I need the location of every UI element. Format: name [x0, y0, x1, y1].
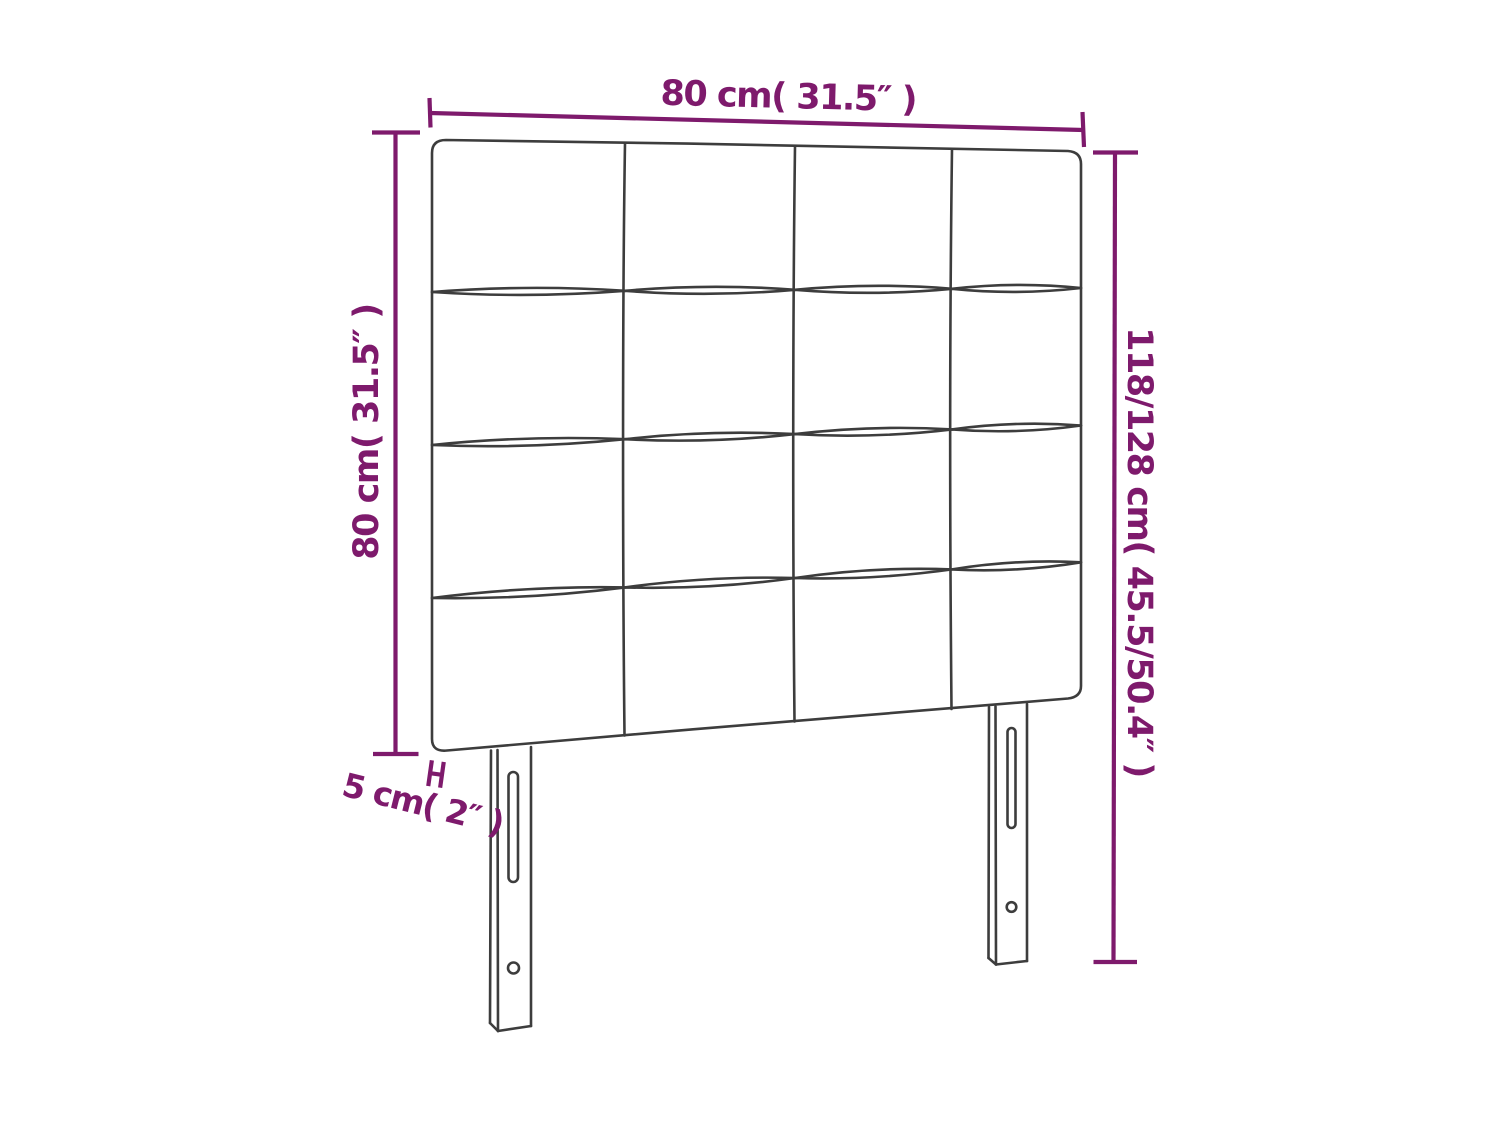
right-leg-bolt-hole	[1007, 902, 1017, 912]
left-leg-bolt-hole	[508, 963, 519, 974]
left-leg-slot	[509, 772, 519, 882]
right-leg-front-left-edge	[996, 707, 997, 965]
dimension-labels: 80 cm( 31.5″ ) 80 cm( 31.5″ ) 118/128 cm…	[338, 74, 1159, 843]
left-leg-bottom-edge	[498, 1026, 531, 1031]
width-dimension-right-tick	[1083, 112, 1085, 147]
left-leg	[490, 747, 531, 1031]
width-dimension-label: 80 cm( 31.5″ )	[660, 74, 916, 121]
right-leg-bottom-edge	[996, 961, 1027, 965]
total-height-dimension-label: 118/128 cm( 45.5/50.4″ )	[1119, 327, 1159, 777]
horizontal-seam-3-upper	[432, 561, 1081, 598]
headboard-drawing	[432, 140, 1081, 1031]
height-dimension-label: 80 cm( 31.5″ )	[347, 304, 387, 559]
right-leg-side-edge	[989, 707, 990, 958]
horizontal-seam-3-lower	[432, 562, 1081, 598]
left-leg-side-edge	[490, 751, 491, 1024]
horizontal-seam-2-lower	[432, 426, 1081, 447]
thickness-marker-cross-bar	[430, 773, 442, 775]
right-leg	[989, 704, 1028, 965]
thickness-dimension-marker	[428, 760, 444, 787]
left-leg-front-left-edge	[498, 750, 499, 1031]
horizontal-seam-2-upper	[432, 424, 1081, 445]
total-height-main-line	[1114, 153, 1116, 962]
right-leg-slot	[1008, 728, 1016, 828]
dimension-diagram: 80 cm( 31.5″ ) 80 cm( 31.5″ ) 118/128 cm…	[0, 0, 1500, 1125]
thickness-dimension-label: 5 cm( 2″ )	[338, 765, 507, 843]
